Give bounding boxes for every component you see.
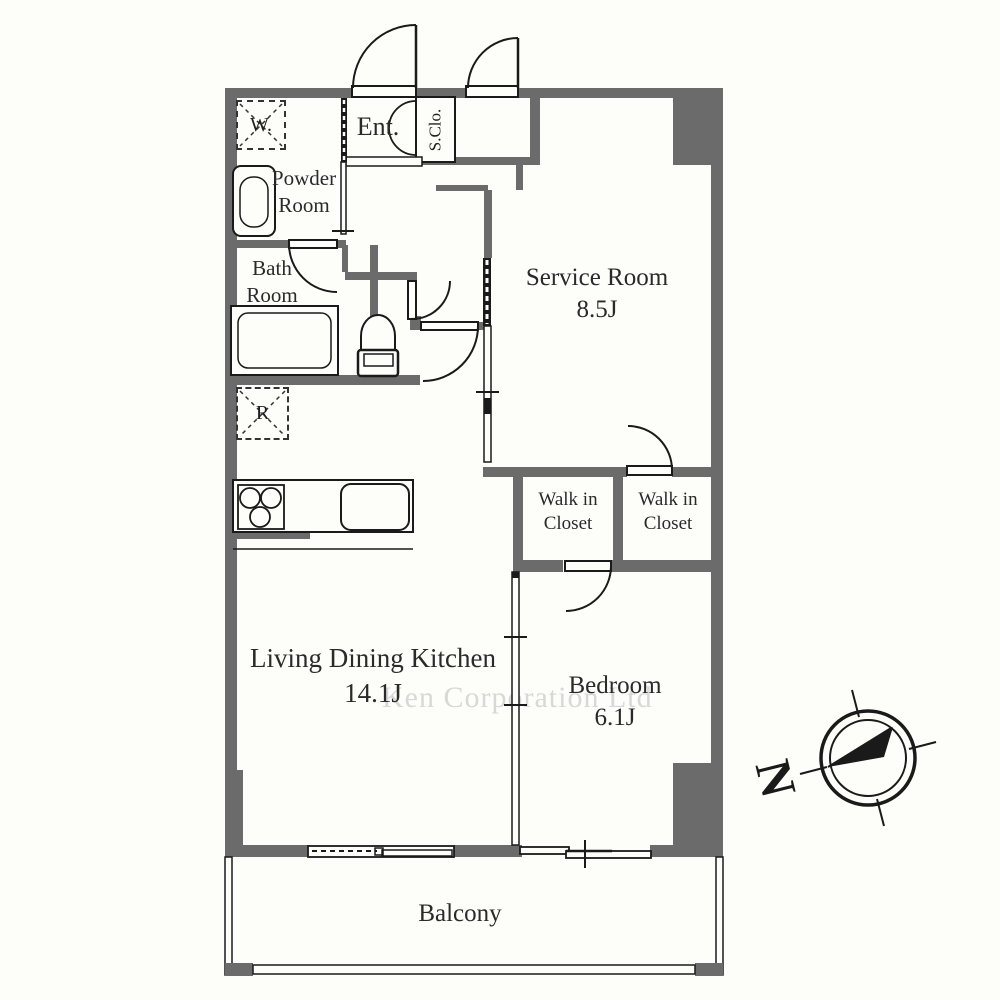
wall-segment	[225, 375, 420, 385]
door-threshold	[466, 86, 518, 97]
hallway-door-leaf	[421, 322, 478, 330]
service-room-sliding-door	[484, 326, 491, 462]
room-label-walk-in-closet-right: Walk in Closet	[623, 488, 713, 537]
pillar-bottom-left	[225, 770, 243, 857]
wall-segment	[345, 272, 417, 280]
bedroom-name: Bedroom	[568, 672, 661, 699]
burner-icon	[261, 488, 281, 508]
bedroom-door-arc	[566, 566, 611, 611]
washing-machine-label: W.	[250, 114, 272, 137]
room-label-bath-room: Bath Room	[232, 255, 312, 309]
room-label-entrance: Ent.	[342, 110, 414, 143]
ldk-name: Living Dining Kitchen	[250, 643, 496, 673]
shoe-closet-box: S.Clo.	[415, 96, 456, 163]
wall-segment	[484, 190, 492, 258]
ldk-balcony-window	[308, 846, 454, 857]
sliding-door-panel	[484, 398, 491, 414]
wall-segment	[225, 88, 352, 98]
wall-segment	[513, 560, 563, 572]
pillar-top-right	[673, 98, 723, 165]
bedroom-door-leaf	[565, 561, 611, 571]
room-label-service-room: Service Room 8.5J	[517, 262, 677, 326]
toilet-door-leaf	[408, 281, 416, 319]
stove-icon	[238, 485, 284, 529]
door-threshold	[352, 86, 416, 97]
wall-segment	[650, 845, 711, 857]
wall-segment	[519, 88, 723, 98]
entrance-step	[346, 157, 422, 166]
service-room-area: 8.5J	[517, 294, 677, 326]
wall-segment	[611, 560, 723, 572]
floor-plan: Ken Corporation Ltd S.Clo. W. R	[0, 0, 1000, 1000]
bathtub-icon	[231, 306, 338, 375]
ldk-area: 14.1J	[235, 676, 511, 711]
compass-needle	[828, 727, 893, 767]
room-label-balcony: Balcony	[385, 898, 535, 930]
partition-cap	[512, 572, 519, 578]
wall-segment	[410, 316, 421, 330]
burner-icon	[240, 488, 260, 508]
sink-icon	[341, 484, 409, 530]
wall-segment	[342, 245, 348, 272]
bath-door-leaf	[289, 240, 337, 248]
wall-segment	[483, 467, 627, 477]
wall-segment	[237, 845, 310, 857]
toilet-door-arc	[412, 281, 450, 319]
room-label-powder-room: Powder Room	[254, 165, 354, 219]
wall-segment	[225, 240, 289, 248]
closet-door-leaf	[627, 466, 672, 475]
wall-left	[225, 88, 237, 857]
wall-kitchen-stub	[225, 531, 310, 539]
compass-north-label: N	[745, 754, 808, 803]
wall-segment	[478, 322, 484, 330]
bedroom-balcony-window	[520, 840, 651, 868]
refrigerator-icon: R	[236, 387, 289, 440]
hallway-door-arc	[423, 326, 478, 381]
service-room-name: Service Room	[526, 264, 668, 291]
room-label-ldk: Living Dining Kitchen 14.1J	[235, 641, 511, 710]
refrigerator-label: R	[256, 402, 269, 425]
wall-segment	[530, 98, 540, 165]
wall-segment	[410, 272, 417, 282]
wall-segment	[516, 163, 523, 190]
room-label-bedroom: Bedroom 6.1J	[547, 670, 683, 734]
compass-icon: N	[745, 690, 936, 826]
closet-door-arc	[628, 426, 672, 470]
burner-icon	[250, 507, 270, 527]
room-label-shoe-closet: S.Clo.	[426, 108, 446, 151]
room-label-walk-in-closet-left: Walk in Closet	[521, 488, 615, 537]
washing-machine-icon: W.	[236, 100, 286, 150]
wall-segment	[672, 467, 723, 477]
toilet-icon	[358, 315, 398, 376]
pillar-bottom-right	[673, 763, 723, 857]
wall-right	[711, 98, 723, 857]
wall-segment	[453, 845, 522, 857]
service-room-window	[483, 258, 491, 326]
entrance-door-arc	[353, 25, 416, 88]
trunk-door-arc	[468, 38, 518, 88]
compass-needle-line	[828, 728, 891, 767]
wall-segment	[370, 245, 378, 383]
bedroom-area: 6.1J	[547, 702, 683, 734]
wall-segment	[436, 185, 488, 191]
